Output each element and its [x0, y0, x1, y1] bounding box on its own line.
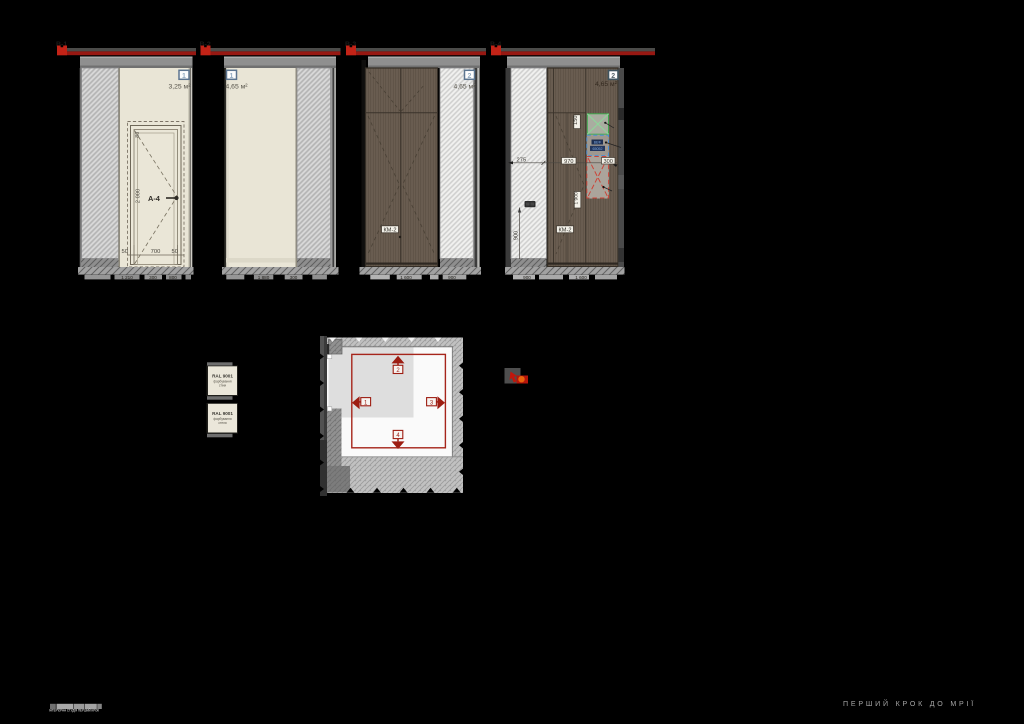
svg-text:А-4: А-4 — [148, 194, 161, 203]
svg-text:4,65 м²: 4,65 м² — [453, 84, 476, 91]
svg-text:275: 275 — [517, 158, 527, 164]
svg-text:КМ-2: КМ-2 — [384, 228, 397, 234]
svg-text:900: 900 — [514, 231, 520, 240]
svg-text:3,25 м²: 3,25 м² — [168, 84, 191, 91]
svg-text:50: 50 — [172, 249, 178, 255]
svg-text:2: 2 — [468, 73, 472, 80]
svg-text:700: 700 — [151, 249, 161, 255]
svg-text:ІНТЕР'ЄРНА СТУДІЯ ПЕРШИЙ КРОК: ІНТЕР'ЄРНА СТУДІЯ ПЕРШИЙ КРОК — [49, 709, 99, 713]
svg-text:150: 150 — [573, 116, 579, 125]
svg-text:900: 900 — [448, 275, 456, 280]
svg-text:300: 300 — [149, 275, 157, 280]
svg-text:800: 800 — [169, 275, 177, 280]
svg-text:4,65 м²: 4,65 м² — [226, 84, 249, 91]
svg-text:1 210: 1 210 — [121, 275, 133, 280]
svg-text:970: 970 — [564, 159, 573, 165]
svg-text:300: 300 — [604, 159, 613, 165]
svg-text:стеля: стеля — [218, 421, 227, 425]
svg-text:2: 2 — [611, 73, 615, 80]
svg-text:КМ-2: КМ-2 — [559, 228, 572, 234]
svg-text:ПЕРШИЙ КРОК ДО МРІЇ: ПЕРШИЙ КРОК ДО МРІЇ — [843, 699, 976, 708]
svg-text:1 600: 1 600 — [575, 275, 587, 280]
svg-text:4,65 м²: 4,65 м² — [595, 81, 618, 88]
svg-text:стіни: стіни — [219, 384, 227, 388]
svg-text:300: 300 — [290, 275, 298, 280]
svg-text:50: 50 — [122, 249, 128, 255]
svg-text:1 600: 1 600 — [400, 275, 412, 280]
svg-text:RAL 9001: RAL 9001 — [212, 411, 233, 416]
svg-text:1 900: 1 900 — [574, 192, 580, 205]
svg-text:65052: 65052 — [593, 147, 603, 151]
svg-text:900: 900 — [523, 275, 531, 280]
svg-text:80: 80 — [135, 132, 141, 138]
svg-text:1: 1 — [182, 73, 186, 80]
svg-text:1 880: 1 880 — [258, 275, 270, 280]
svg-text:ВЕФ: ВЕФ — [594, 141, 602, 145]
svg-text:RAL 9001: RAL 9001 — [212, 374, 233, 379]
svg-text:1: 1 — [230, 73, 234, 80]
svg-text:2 000: 2 000 — [136, 189, 142, 204]
